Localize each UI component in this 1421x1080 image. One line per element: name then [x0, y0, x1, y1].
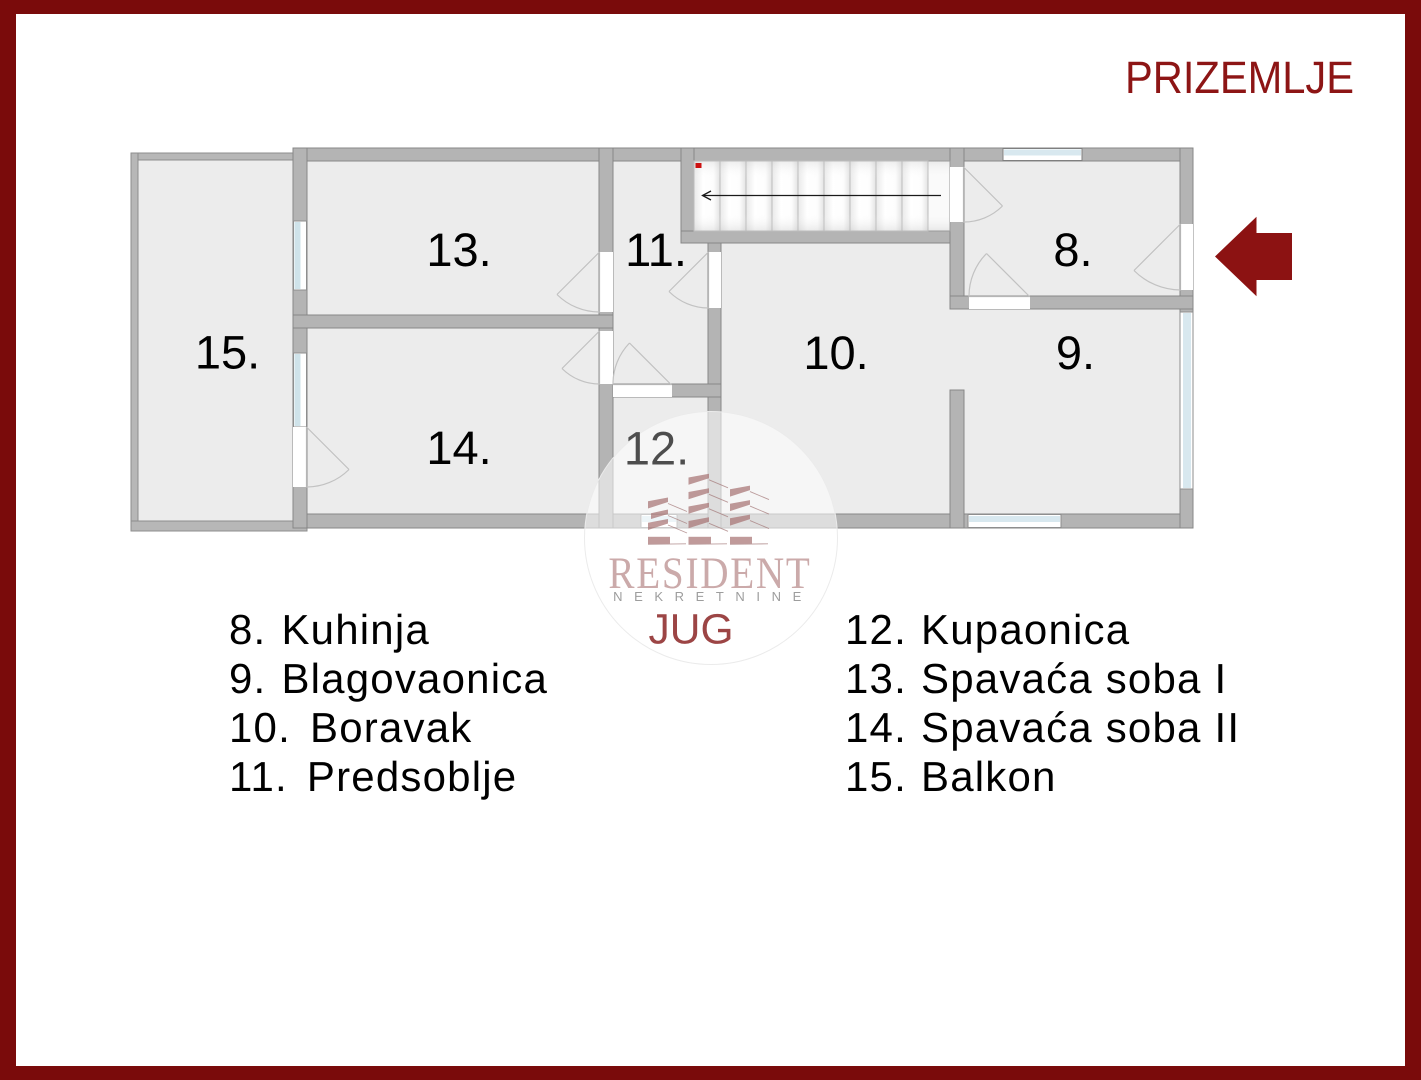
svg-text:8.: 8.	[1053, 223, 1092, 276]
svg-text:13.: 13.	[426, 223, 491, 276]
svg-text:JUG: JUG	[649, 607, 734, 654]
svg-text:14.: 14.	[426, 421, 491, 474]
svg-text:12.: 12.	[624, 422, 689, 475]
svg-text:NEKRETNINE: NEKRETNINE	[613, 589, 813, 604]
svg-text:10.: 10.	[803, 326, 868, 379]
svg-text:15.: 15.	[195, 326, 260, 379]
svg-text:9.: 9.	[1056, 326, 1095, 379]
svg-text:11.: 11.	[625, 223, 687, 276]
